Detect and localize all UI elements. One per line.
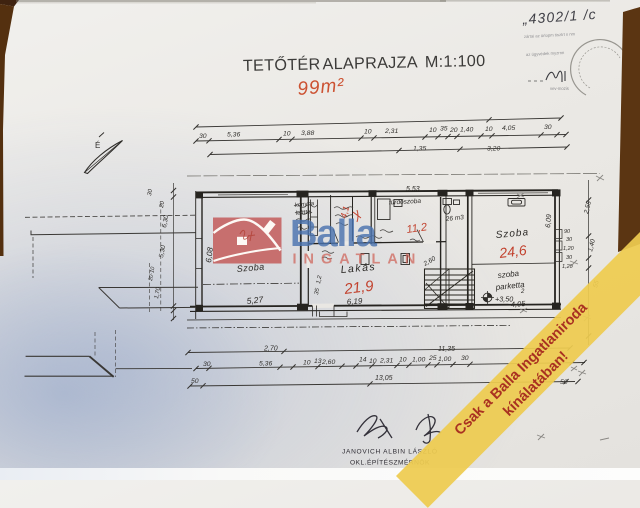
svg-text:6,09: 6,09: [545, 214, 553, 228]
svg-text:3,20: 3,20: [487, 146, 500, 153]
svg-text:2,60: 2,60: [422, 255, 438, 268]
svg-text:5,36: 5,36: [259, 360, 272, 367]
svg-text:fürdőszoba: fürdőszoba: [389, 198, 422, 207]
svg-text:2,60: 2,60: [321, 359, 335, 366]
svg-text:1,2: 1,2: [316, 274, 323, 284]
svg-text:5,30: 5,30: [158, 244, 167, 258]
svg-text:Szoba: Szoba: [495, 227, 529, 241]
svg-text:10: 10: [485, 126, 493, 133]
svg-text:2,31: 2,31: [379, 357, 393, 364]
svg-text:5,36: 5,36: [227, 132, 240, 139]
svg-text:99m²: 99m²: [297, 75, 346, 100]
svg-text:6,30: 6,30: [161, 214, 170, 228]
svg-text:30: 30: [203, 361, 211, 368]
svg-text:30: 30: [544, 124, 552, 131]
svg-text:30: 30: [461, 355, 469, 362]
svg-text:11,35: 11,35: [438, 346, 455, 353]
svg-text:35: 35: [314, 287, 321, 295]
svg-text:50: 50: [560, 379, 568, 386]
svg-text:2,70: 2,70: [263, 345, 278, 352]
svg-text:50: 50: [191, 378, 199, 385]
svg-text:10: 10: [303, 359, 311, 366]
svg-text:10: 10: [283, 130, 291, 137]
svg-text:2: 2: [520, 289, 525, 295]
svg-text:20·10: 20·10: [148, 266, 157, 283]
svg-text:„4302/1 /c: „4302/1 /c: [521, 6, 597, 27]
svg-text:11,2: 11,2: [406, 221, 428, 236]
svg-text:INGATLAN: INGATLAN: [293, 252, 423, 268]
svg-text:20: 20: [449, 127, 458, 134]
svg-text:Balla: Balla: [290, 213, 378, 255]
svg-text:4,05: 4,05: [502, 125, 515, 132]
svg-text:20: 20: [159, 200, 166, 209]
svg-text:6,19: 6,19: [347, 296, 364, 306]
svg-text:30: 30: [199, 133, 207, 140]
svg-text:1,00: 1,00: [412, 356, 425, 363]
svg-text:2,31: 2,31: [384, 128, 398, 135]
svg-text:2,55: 2,55: [583, 200, 593, 215]
svg-text:zártai az ürlopm tisztrt s nm: zártai az ürlopm tisztrt s nm: [524, 31, 576, 39]
svg-text:1,00: 1,00: [438, 356, 451, 363]
svg-text:30: 30: [566, 237, 573, 243]
svg-text:5,53: 5,53: [406, 186, 420, 193]
svg-text:14: 14: [359, 357, 367, 364]
svg-text:13,05: 13,05: [375, 375, 393, 382]
svg-text:10: 10: [399, 357, 407, 364]
svg-text:1,40: 1,40: [460, 126, 473, 133]
svg-text:10: 10: [364, 129, 372, 136]
svg-text:TETŐTÉRALAPRAJZAM:1:100: TETŐTÉRALAPRAJZAM:1:100: [243, 51, 486, 75]
svg-text:90: 90: [564, 229, 571, 235]
svg-text:21,9: 21,9: [342, 277, 375, 298]
svg-text:É: É: [95, 141, 100, 150]
svg-text:30: 30: [566, 255, 573, 261]
svg-text:24,6: 24,6: [497, 242, 527, 261]
svg-text:4,05: 4,05: [511, 299, 527, 309]
svg-text:3,88: 3,88: [301, 130, 314, 137]
svg-text:25: 25: [428, 355, 437, 362]
svg-text:35: 35: [440, 125, 448, 132]
svg-text:26 m3: 26 m3: [444, 214, 464, 223]
svg-text:vev-mozis: vev-mozis: [550, 86, 569, 91]
svg-text:5,27: 5,27: [246, 294, 264, 306]
svg-text:13: 13: [314, 358, 322, 365]
svg-text:1,20: 1,20: [563, 246, 575, 252]
svg-text:1,35: 1,35: [413, 146, 426, 153]
svg-text:szoba: szoba: [497, 269, 520, 280]
svg-text:10: 10: [369, 358, 377, 365]
svg-text:30: 30: [147, 188, 154, 196]
svg-text:konyha: konyha: [295, 201, 316, 209]
svg-text:az ügyvédek myzrnn: az ügyvédek myzrnn: [526, 50, 565, 57]
svg-text:10: 10: [429, 127, 437, 134]
